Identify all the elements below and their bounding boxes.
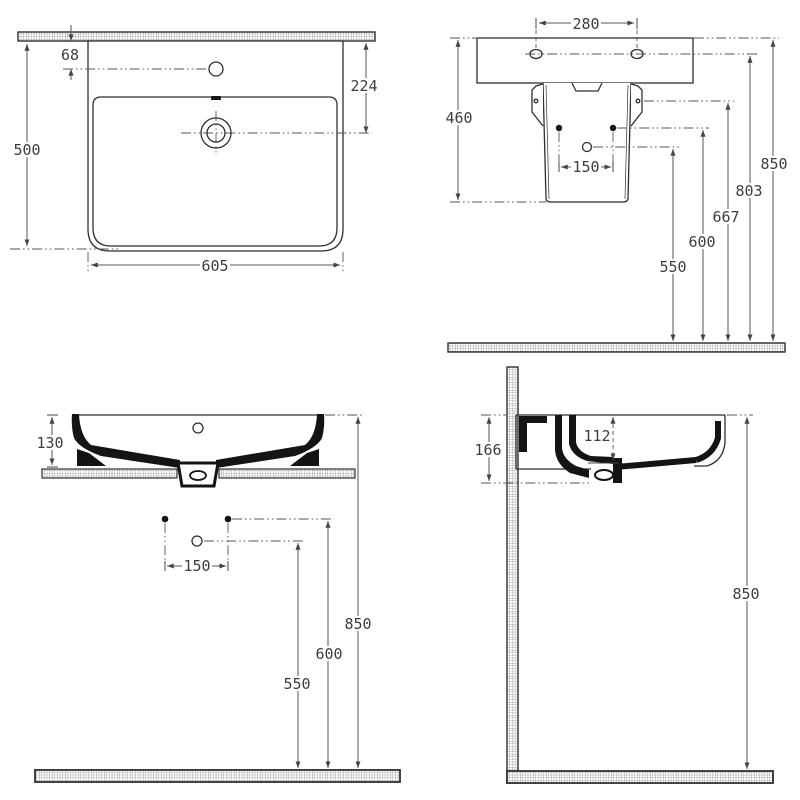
supply-hole-left xyxy=(162,516,169,523)
waste-outlet xyxy=(595,470,613,480)
dim-label-130: 130 xyxy=(36,434,63,452)
bowl-front-section xyxy=(696,421,718,460)
dim-h-waste-rear: 550 xyxy=(658,149,688,341)
dim-label-68: 68 xyxy=(61,46,79,64)
plan-view: 68 500 224 605 xyxy=(10,25,379,275)
dim-back-height: 460 xyxy=(444,40,474,200)
wall-section xyxy=(18,32,375,41)
dim-label-600-rear: 600 xyxy=(688,233,715,251)
dim-label-150-front: 150 xyxy=(183,557,210,575)
washbasin-technical-drawing: 68 500 224 605 xyxy=(0,0,800,800)
technical-drawing-page: 68 500 224 605 xyxy=(0,0,800,800)
supply-hole-left xyxy=(556,125,562,131)
dim-label-850-rear: 850 xyxy=(760,155,787,173)
dim-width: 605 xyxy=(88,252,343,275)
dim-h-supply-rear: 600 xyxy=(687,130,717,341)
floor-section xyxy=(448,343,785,352)
dim-h-fixing: 803 xyxy=(734,56,764,341)
supply-hole-right xyxy=(610,125,616,131)
dim-label-166: 166 xyxy=(474,441,501,459)
dim-fixing-centres: 280 xyxy=(536,15,637,33)
dim-label-550-rear: 550 xyxy=(659,258,686,276)
dim-label-280: 280 xyxy=(572,15,599,33)
side-view: 166 112 850 xyxy=(473,367,773,783)
dim-label-850-front: 850 xyxy=(344,615,371,633)
dim-h-supply-front: 600 xyxy=(314,521,344,768)
waste-outlet xyxy=(583,143,592,152)
dim-label-150-rear: 150 xyxy=(572,158,599,176)
dim-label-850-side: 850 xyxy=(732,585,759,603)
mount-bracket xyxy=(519,416,547,452)
tap-hole xyxy=(209,62,223,76)
dim-supply-centres-front: 150 xyxy=(165,557,228,575)
dim-label-803: 803 xyxy=(735,182,762,200)
back-mount-lines xyxy=(516,415,591,469)
dim-label-112: 112 xyxy=(583,427,610,445)
dim-label-600-front: 600 xyxy=(315,645,342,663)
counter-section-left xyxy=(42,469,177,478)
dim-overall-height: 166 xyxy=(473,417,503,481)
dim-h-waste-front: 550 xyxy=(282,543,312,768)
back-notch xyxy=(572,83,602,91)
counter-section-right xyxy=(219,469,355,478)
dim-h-bracket: 667 xyxy=(711,103,741,341)
dim-label-500: 500 xyxy=(13,141,40,159)
dim-h-rim-side: 850 xyxy=(731,417,761,769)
bracket-right xyxy=(631,84,642,126)
dim-label-224: 224 xyxy=(350,77,377,95)
floor-section xyxy=(507,771,773,783)
dim-tap-to-drain: 224 xyxy=(349,43,379,133)
dim-label-667: 667 xyxy=(712,208,739,226)
trap-block xyxy=(613,458,622,483)
front-view: 130 150 850 600 550 xyxy=(35,414,400,782)
bracket-left xyxy=(532,84,543,126)
waste-outlet xyxy=(192,536,202,546)
dim-bowl-height: 130 xyxy=(35,415,65,467)
dim-label-460: 460 xyxy=(445,109,472,127)
basin-back-body xyxy=(477,38,693,83)
floor-section xyxy=(35,770,400,782)
dim-label-550-front: 550 xyxy=(283,675,310,693)
overflow-slot xyxy=(211,96,221,100)
drain-trap-outlet xyxy=(190,471,206,480)
dim-label-605: 605 xyxy=(201,257,228,275)
tap-hole xyxy=(193,423,203,433)
supply-hole-right xyxy=(225,516,232,523)
bowl-bottom-section xyxy=(616,460,696,467)
rear-view: 280 460 150 850 803 667 xyxy=(444,15,789,352)
